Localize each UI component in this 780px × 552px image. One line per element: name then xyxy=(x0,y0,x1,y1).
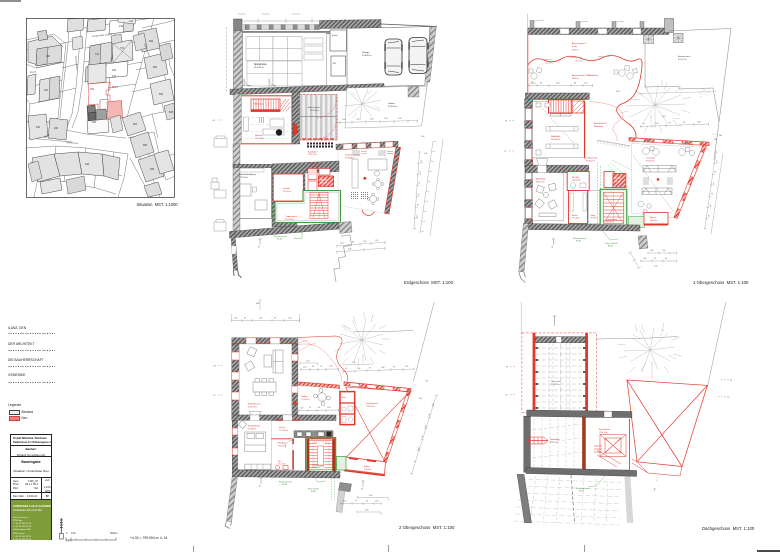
svg-text:Dachraum: Dachraum xyxy=(551,381,561,383)
svg-text:97.9.45 m²: 97.9.45 m² xyxy=(302,398,311,401)
svg-text:93: 93 xyxy=(393,367,395,369)
svg-text:2.66: 2.66 xyxy=(556,83,559,85)
svg-text:70: 70 xyxy=(320,366,322,368)
svg-text:96: 96 xyxy=(505,121,507,123)
svg-text:7.80: 7.80 xyxy=(352,362,355,364)
svg-text:RD 60: RD 60 xyxy=(579,490,584,492)
svg-text:Spielgruppe: Spielgruppe xyxy=(254,63,267,66)
svg-text:1.34: 1.34 xyxy=(655,123,658,125)
svg-text:1.00: 1.00 xyxy=(288,317,291,319)
svg-text:1.34: 1.34 xyxy=(357,368,360,370)
svg-text:97.16.82 m²: 97.16.82 m² xyxy=(248,427,257,430)
svg-text:96: 96 xyxy=(506,367,508,369)
svg-text:45: 45 xyxy=(683,122,685,124)
svg-text:Wohn/Essen: Wohn/Essen xyxy=(248,404,261,406)
svg-text:95: 95 xyxy=(274,317,276,319)
svg-text:95: 95 xyxy=(707,215,709,217)
svg-text:4.88: 4.88 xyxy=(256,303,259,305)
svg-text:RD 60: RD 60 xyxy=(282,484,287,486)
svg-text:Aussenraum 3: Aussenraum 3 xyxy=(594,122,608,125)
svg-text:528: 528 xyxy=(169,111,174,114)
svg-text:Städtlistrasse: Städtlistrasse xyxy=(66,141,79,145)
svg-text:1.40: 1.40 xyxy=(709,204,712,208)
svg-text:95: 95 xyxy=(420,436,423,438)
svg-text:97.55.00 m²: 97.55.00 m² xyxy=(310,109,320,112)
svg-text:1.05: 1.05 xyxy=(234,317,237,319)
svg-text:97: 97 xyxy=(355,500,357,502)
svg-text:1.30: 1.30 xyxy=(329,366,332,368)
svg-text:M: M xyxy=(259,486,261,488)
svg-text:Balkon: Balkon xyxy=(302,396,308,398)
svg-text:97: 97 xyxy=(369,367,371,369)
svg-text:1.40: 1.40 xyxy=(417,193,419,197)
svg-text:Aussenraum 2 (Bibliothek): Aussenraum 2 (Bibliothek) xyxy=(572,74,598,77)
svg-text:500cm: 500cm xyxy=(110,531,118,535)
svg-text:100: 100 xyxy=(71,531,76,535)
svg-text:Aufenthalt: Aufenthalt xyxy=(536,178,546,181)
svg-text:Balkon: Balkon xyxy=(650,217,656,219)
svg-text:SANITÄT: SANITÄT xyxy=(320,179,328,182)
svg-text:1.40: 1.40 xyxy=(370,118,373,120)
svg-text:202: 202 xyxy=(44,89,49,92)
svg-text:100: 100 xyxy=(425,380,428,383)
svg-text:1.36: 1.36 xyxy=(650,250,653,252)
svg-text:(Cafe): (Cafe) xyxy=(572,46,577,48)
svg-text:1.40: 1.40 xyxy=(342,119,345,121)
svg-text:95: 95 xyxy=(427,414,430,416)
svg-text:Schlafzimmer: Schlafzimmer xyxy=(248,425,261,428)
svg-text:97.48.91 m²: 97.48.91 m² xyxy=(362,54,372,57)
svg-text:Sutvitg Nolfier Cadruvi: Sutvitg Nolfier Cadruvi xyxy=(92,33,113,38)
svg-text:97.45.93 m²: 97.45.93 m² xyxy=(388,105,398,108)
svg-text:80: 80 xyxy=(574,83,576,85)
svg-text:97.43.02 m²: 97.43.02 m² xyxy=(586,160,595,163)
svg-text:97.17.00 m²: 97.17.00 m² xyxy=(239,176,248,179)
svg-text:95: 95 xyxy=(312,366,314,368)
svg-text:656: 656 xyxy=(143,144,148,147)
svg-text:5.04: 5.04 xyxy=(365,510,368,512)
svg-text:90: 90 xyxy=(345,368,347,370)
svg-text:36.00 m²: 36.00 m² xyxy=(572,49,579,52)
svg-text:97.40.28 m²: 97.40.28 m² xyxy=(646,160,655,163)
svg-text:95: 95 xyxy=(710,193,712,195)
svg-text:(Bibliothek): (Bibliothek) xyxy=(594,125,603,128)
svg-text:1.00: 1.00 xyxy=(375,500,378,502)
svg-text:Leseraum: Leseraum xyxy=(646,157,656,160)
svg-text:0: 0 xyxy=(66,531,68,535)
svg-text:231: 231 xyxy=(90,88,95,91)
svg-text:Treppenhaus: Treppenhaus xyxy=(606,218,617,221)
svg-text:97: 97 xyxy=(654,258,656,260)
svg-text:Werkraum: Werkraum xyxy=(254,104,264,106)
svg-text:97.94.85 m²: 97.94.85 m² xyxy=(254,66,264,69)
svg-text:609: 609 xyxy=(149,40,154,43)
svg-text:Bad: Bad xyxy=(342,397,345,399)
svg-text:1.35: 1.35 xyxy=(405,366,408,368)
svg-text:1.62: 1.62 xyxy=(643,258,646,260)
svg-text:97.5.46 m²: 97.5.46 m² xyxy=(310,165,319,168)
svg-text:M: M xyxy=(361,489,363,491)
svg-text:1.00: 1.00 xyxy=(421,136,424,138)
svg-text:1.40: 1.40 xyxy=(384,118,387,120)
svg-text:218: 218 xyxy=(119,25,124,28)
svg-text:664: 664 xyxy=(133,123,138,126)
svg-text:Sanitäts-Empfang: Sanitäts-Empfang xyxy=(239,173,256,176)
svg-text:97.30.10 m²: 97.30.10 m² xyxy=(599,431,608,434)
svg-text:1.40: 1.40 xyxy=(356,119,359,121)
svg-text:664.4: 664.4 xyxy=(112,86,119,89)
svg-text:M: M xyxy=(552,247,554,249)
svg-text:95: 95 xyxy=(416,204,418,206)
svg-text:95: 95 xyxy=(418,182,420,184)
svg-text:WC-Beh.: WC-Beh. xyxy=(572,177,580,179)
svg-text:BB 60: BB 60 xyxy=(608,245,613,247)
svg-text:MAT.LAG: MAT.LAG xyxy=(320,182,328,185)
svg-text:Dachterrasse: Dachterrasse xyxy=(366,402,379,405)
svg-text:BB 60: BB 60 xyxy=(311,491,316,493)
svg-text:654: 654 xyxy=(159,93,164,96)
svg-text:719: 719 xyxy=(120,47,125,50)
svg-text:716: 716 xyxy=(95,53,100,56)
svg-text:97.21.58 m²: 97.21.58 m² xyxy=(255,137,265,140)
svg-text:97.13.17 m²: 97.13.17 m² xyxy=(308,153,317,156)
svg-text:WC-HE: WC-HE xyxy=(615,181,622,183)
svg-text:97.02.97 m²: 97.02.97 m² xyxy=(678,58,687,61)
svg-text:Küche: Küche xyxy=(279,427,286,429)
svg-text:Archiv: Archiv xyxy=(572,214,577,217)
svg-text:35: 35 xyxy=(713,171,715,173)
svg-text:786: 786 xyxy=(654,488,656,491)
svg-text:4.50: 4.50 xyxy=(369,495,372,497)
svg-text:1.44: 1.44 xyxy=(715,160,718,164)
svg-text:608: 608 xyxy=(150,168,155,171)
svg-text:1.00: 1.00 xyxy=(340,243,343,245)
svg-text:M: M xyxy=(258,247,260,249)
svg-text:Garage: Garage xyxy=(362,51,370,54)
svg-text:100: 100 xyxy=(714,139,717,141)
svg-text:97: 97 xyxy=(643,123,645,125)
svg-text:RD 60: RD 60 xyxy=(576,240,581,242)
svg-text:1.35: 1.35 xyxy=(300,407,303,409)
svg-text:652: 652 xyxy=(153,66,158,69)
svg-text:80: 80 xyxy=(540,83,542,85)
svg-text:Bibliothek: Bibliothek xyxy=(551,135,561,138)
svg-text:97.56.31 m²: 97.56.31 m² xyxy=(366,405,375,408)
svg-text:4.49: 4.49 xyxy=(348,249,351,251)
svg-text:Sitzung: Sitzung xyxy=(255,134,263,137)
svg-text:OG: OG xyxy=(213,366,216,368)
svg-text:220: 220 xyxy=(112,69,117,72)
svg-text:234: 234 xyxy=(92,121,97,124)
svg-text:1.40: 1.40 xyxy=(303,366,306,368)
svg-text:Küche: Küche xyxy=(332,35,337,37)
svg-text:1.70: 1.70 xyxy=(419,171,421,175)
svg-text:1.00: 1.00 xyxy=(327,407,330,409)
svg-text:Technik: Technik xyxy=(283,188,291,190)
svg-text:Gemein. Kinder: Gemein. Kinder xyxy=(345,154,360,157)
svg-text:CC: CC xyxy=(727,397,730,399)
svg-text:100: 100 xyxy=(419,398,422,400)
svg-text:4.98: 4.98 xyxy=(616,91,619,93)
svg-text:2.67: 2.67 xyxy=(259,317,262,319)
svg-text:200: 200 xyxy=(54,127,59,130)
svg-text:Balkon: Balkon xyxy=(364,466,370,468)
svg-text:1.50: 1.50 xyxy=(363,241,366,243)
svg-text:CC: CC xyxy=(505,395,508,397)
svg-text:36.56 m²: 36.56 m² xyxy=(572,77,579,80)
svg-text:97.41.19 m²: 97.41.19 m² xyxy=(248,406,258,409)
svg-text:1.45: 1.45 xyxy=(584,83,587,85)
svg-text:97: 97 xyxy=(309,407,311,409)
svg-text:206: 206 xyxy=(46,55,51,58)
svg-text:214: 214 xyxy=(129,20,134,23)
svg-text:1.36: 1.36 xyxy=(420,160,422,164)
svg-text:1.38: 1.38 xyxy=(415,215,417,219)
svg-text:97: 97 xyxy=(669,122,671,124)
svg-text:97.12.54 m²: 97.12.54 m² xyxy=(279,429,288,432)
svg-text:1.00: 1.00 xyxy=(424,153,427,155)
svg-text:97.86.97 m²: 97.86.97 m² xyxy=(551,383,560,386)
svg-text:Plazza: Plazza xyxy=(30,71,37,74)
svg-text:Gang: Gang xyxy=(591,215,596,217)
svg-text:1.08: 1.08 xyxy=(697,122,700,124)
svg-text:Aussenraum 4: Aussenraum 4 xyxy=(678,55,692,58)
svg-text:Aussenraum 1: Aussenraum 1 xyxy=(572,42,587,45)
svg-text:97.9.87 m²: 97.9.87 m² xyxy=(283,190,292,193)
svg-text:1.45: 1.45 xyxy=(530,83,533,85)
svg-text:Eingang: Eingang xyxy=(278,443,285,445)
svg-text:98.19.72 m²: 98.19.72 m² xyxy=(536,181,545,184)
svg-text:CC: CC xyxy=(504,151,507,153)
svg-text:96: 96 xyxy=(352,242,354,244)
svg-text:100: 100 xyxy=(719,135,722,137)
svg-text:97.21.36 m²: 97.21.36 m² xyxy=(550,441,559,444)
svg-text:96: 96 xyxy=(730,380,732,382)
svg-text:Treppenhaus: Treppenhaus xyxy=(285,216,297,218)
svg-text:Ingang Süd: Ingang Süd xyxy=(572,180,580,182)
svg-text:2.70: 2.70 xyxy=(306,360,309,362)
svg-text:RD 60: RD 60 xyxy=(277,238,282,240)
svg-text:Dachboden: Dachboden xyxy=(550,439,560,441)
svg-text:CC: CC xyxy=(213,395,216,397)
svg-text:45: 45 xyxy=(366,500,368,502)
svg-text:Waschküche: Waschküche xyxy=(599,429,611,431)
svg-text:97.12.84 m²: 97.12.84 m² xyxy=(285,218,294,221)
svg-text:Garten: Garten xyxy=(388,102,395,105)
svg-text:1.40: 1.40 xyxy=(398,118,401,120)
svg-text:1.70: 1.70 xyxy=(712,182,715,186)
svg-text:Aussenraum: Aussenraum xyxy=(308,106,320,109)
svg-text:98.53.37 m²: 98.53.37 m² xyxy=(551,138,561,141)
svg-text:OG: OG xyxy=(212,120,215,122)
svg-text:45: 45 xyxy=(665,258,667,260)
svg-text:5.04: 5.04 xyxy=(654,266,657,268)
svg-text:1.50: 1.50 xyxy=(375,240,378,242)
svg-text:223: 223 xyxy=(112,75,117,78)
svg-text:1.50: 1.50 xyxy=(662,250,665,252)
svg-text:95: 95 xyxy=(244,317,246,319)
svg-text:648: 648 xyxy=(85,163,90,166)
svg-text:190: 190 xyxy=(36,126,41,129)
svg-text:WC-DA: WC-DA xyxy=(615,177,622,180)
svg-text:1.28: 1.28 xyxy=(381,367,384,369)
svg-text:1.52: 1.52 xyxy=(343,500,346,502)
svg-text:45: 45 xyxy=(318,407,320,409)
svg-text:Treppenhaus: Treppenhaus xyxy=(312,464,323,467)
svg-text:Erschliessung: Erschliessung xyxy=(584,157,598,160)
svg-text:Glennerstrasse: Glennerstrasse xyxy=(74,56,78,71)
